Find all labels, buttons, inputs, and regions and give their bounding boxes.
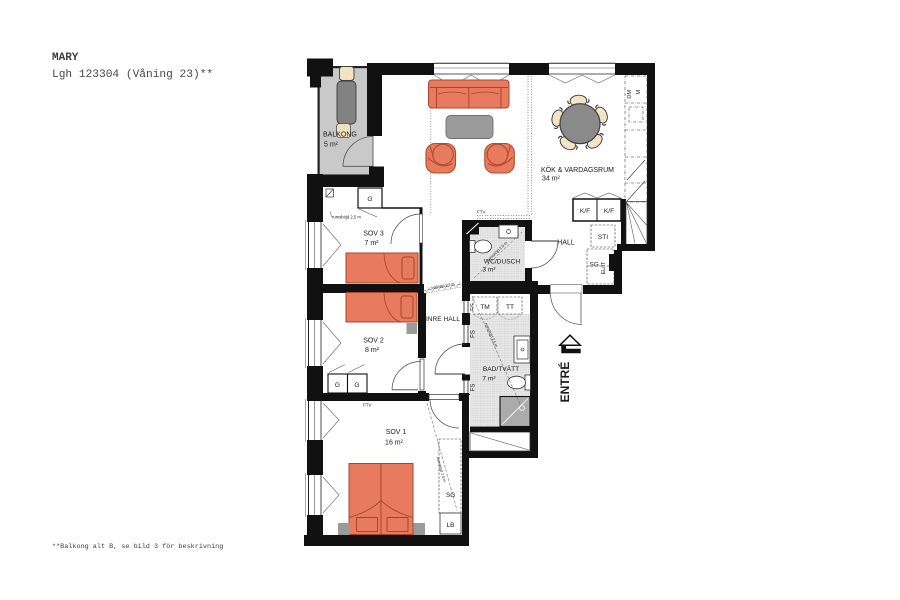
svg-text:DM: DM (627, 90, 633, 99)
svg-text:G: G (354, 382, 359, 389)
svg-text:WC/DUSCH: WC/DUSCH (484, 259, 521, 266)
svg-text:M: M (636, 90, 642, 95)
svg-text:KÖK & VARDAGSRUM: KÖK & VARDAGSRUM (541, 166, 614, 174)
svg-text:SOV 1: SOV 1 (386, 429, 407, 436)
svg-text:16 m²: 16 m² (385, 440, 404, 447)
svg-text:7 m²: 7 m² (482, 376, 496, 383)
svg-text:TT: TT (506, 304, 514, 311)
svg-text:FTV: FTV (477, 210, 486, 215)
svg-text:rumshöjd 2,5 m: rumshöjd 2,5 m (332, 215, 361, 220)
svg-text:7 m²: 7 m² (365, 240, 380, 247)
svg-text:INRE HALL: INRE HALL (426, 316, 460, 323)
svg-text:K/F: K/F (604, 208, 614, 215)
svg-text:HALL: HALL (557, 240, 575, 247)
svg-text:5 m²: 5 m² (324, 142, 339, 149)
svg-text:8 m²: 8 m² (365, 347, 380, 354)
svg-text:LB: LB (447, 522, 455, 529)
svg-text:STI: STI (598, 234, 608, 241)
svg-text:TM: TM (480, 304, 490, 311)
svg-text:K/F: K/F (580, 208, 590, 215)
svg-text:34 m²: 34 m² (542, 176, 561, 183)
svg-text:3 m²: 3 m² (482, 267, 496, 274)
svg-text:G: G (335, 382, 340, 389)
svg-text:ENTRÉ: ENTRÉ (557, 362, 572, 403)
svg-text:FS: FS (471, 330, 477, 338)
svg-text:BAD/TVÄTT: BAD/TVÄTT (483, 365, 519, 373)
svg-text:SOV 3: SOV 3 (363, 231, 384, 238)
svg-text:BALKONG: BALKONG (323, 132, 357, 139)
svg-text:EL/IT: EL/IT (601, 261, 607, 274)
svg-text:SOV 2: SOV 2 (363, 338, 384, 345)
svg-text:FS: FS (471, 384, 477, 392)
svg-text:SG: SG (590, 262, 599, 269)
svg-text:G: G (367, 196, 372, 203)
svg-text:FTV: FTV (363, 403, 372, 408)
